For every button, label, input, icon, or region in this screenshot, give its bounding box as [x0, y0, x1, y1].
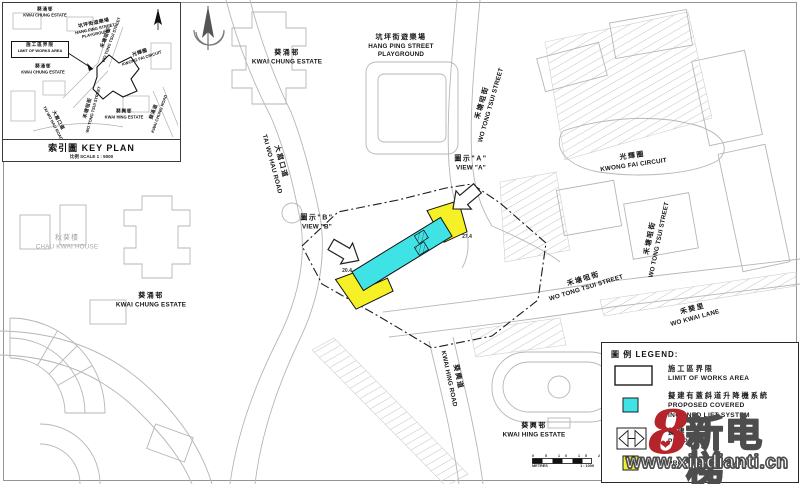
north-arrow-icon: [194, 6, 224, 50]
view-b-arrow-icon: [325, 234, 365, 271]
scale-bar-unit: METRES: [532, 464, 548, 468]
kp-label-kwai-chung-estate-left: 葵涌邨 KWAI CHUNG ESTATE: [21, 65, 65, 76]
proposed-inclined-lift-footprint: [352, 217, 452, 290]
legend-item-inclined-lift: 擬建有蓋斜道升降機系統 PROPOSED COVERED INCLINED LI…: [668, 391, 769, 421]
label-kwai-chung-estate-top: 葵涌邨 KWAI CHUNG ESTATE: [252, 50, 322, 67]
label-kwai-hing-estate: 葵興邨 KWAI HING ESTATE: [503, 423, 566, 440]
legend-item-works-limit: 施工區界限 LIMIT OF WORKS AREA: [668, 364, 749, 384]
label-hang-ping-street-playground: 坑坪街遊樂場 HANG PING STREET PLAYGROUND: [368, 34, 433, 58]
legend-panel: 圖 例 LEGEND: 施工區界限 LIMIT OF WORKS AREA 擬建…: [601, 342, 799, 483]
scale-bar: 0 5 10 15 20 25 METRES 1 : 1000: [532, 454, 594, 468]
legend-hatched-swatch: [616, 427, 648, 450]
label-view-b: 圖示"B" VIEW "B": [300, 215, 333, 232]
legend-item-footpath: PROPOSED FOOTPATH: [668, 459, 748, 469]
label-chau-kwai-house: 秋葵樓 CHAU KWAI HOUSE: [36, 235, 99, 252]
kp-title: 索引圖 KEY PLAN: [3, 141, 180, 154]
legend-footpath-swatch: [622, 455, 640, 472]
spot-level-upper: 27.4: [462, 234, 472, 240]
key-plan-inset: 葵涌邨 KWAI CHUNG ESTATE 坑坪街遊樂場 HANG PING S…: [2, 2, 181, 162]
legend-item-obscured: 擬建 PROPOSED: [668, 427, 708, 447]
kp-label-kwai-chung-estate-top: 葵涌邨 KWAI CHUNG ESTATE: [23, 8, 67, 19]
legend-title: 圖 例 LEGEND:: [611, 349, 678, 360]
kp-label-kwai-hing-estate: 葵興邨 KWAI HING ESTATE: [105, 110, 144, 121]
kp-limit-of-works-box: 施工區界限 LIMIT OF WORKS AREA: [11, 41, 69, 58]
label-kwai-chung-estate-left: 葵涌邨 KWAI CHUNG ESTATE: [116, 293, 186, 310]
legend-works-limit-swatch: [614, 365, 654, 387]
scale-bar-ticks: 0 5 10 15 20 25: [532, 454, 594, 458]
key-plan-north-arrow-icon: [154, 9, 162, 30]
spot-level-lower: 20.4: [342, 268, 352, 274]
legend-lift-swatch: [622, 397, 640, 414]
site-plan-drawing: 葵涌邨 KWAI CHUNG ESTATE 坑坪街遊樂場 HANG PING S…: [0, 0, 800, 484]
kp-caption: 索引圖 KEY PLAN 比例 SCALE 1 : 5000: [3, 139, 180, 161]
kp-scale: 比例 SCALE 1 : 5000: [3, 154, 180, 160]
scale-bar-ratio: 1 : 1000: [580, 464, 594, 468]
label-view-a: 圖示"A" VIEW "A": [454, 156, 487, 173]
